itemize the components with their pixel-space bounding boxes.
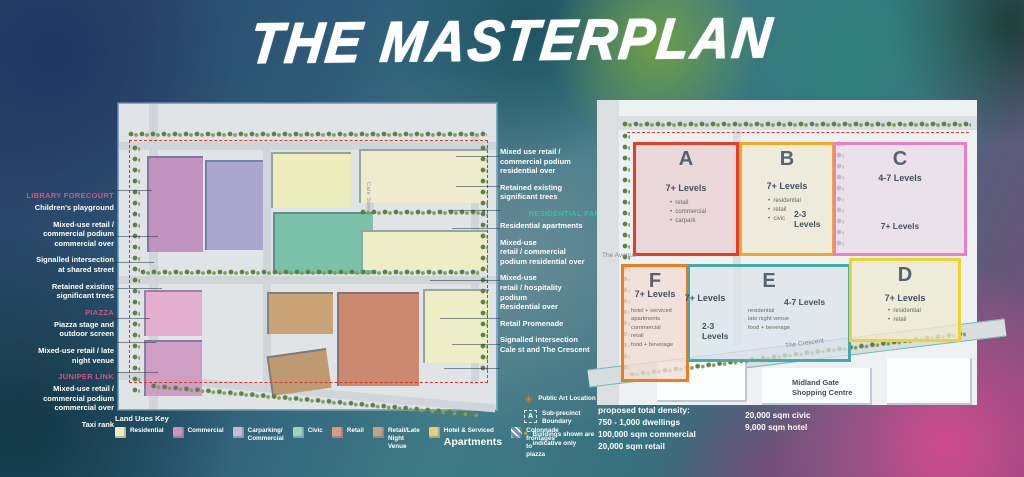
precinct-f: F7+ Levelshotel + serviced apartments co… — [621, 264, 689, 382]
precinct-uses: residential late night venue food + beve… — [748, 307, 790, 332]
leader-line — [112, 262, 154, 263]
legend-title: Land Uses Key — [115, 414, 510, 423]
annotation-item: Mixed-use retail / commercial podium res… — [500, 238, 606, 267]
legend-label: Retail — [347, 427, 364, 435]
block-residential-ne — [359, 149, 487, 203]
asterisk-icon: * — [524, 431, 528, 439]
annotation-item: Piazza stage and outdoor screen — [14, 320, 114, 339]
precinct-levels: 7+ Levels — [742, 181, 832, 191]
annotation-heading: PIAZZA — [14, 308, 114, 317]
precinct-a: A7+ Levels• retail• commercial• carpark — [633, 142, 739, 256]
annotation-item: Mixed-use retail / commercial podium com… — [14, 384, 114, 413]
tree-row — [139, 268, 479, 277]
leader-line — [112, 342, 156, 343]
annotation-item: Signalled intersection at shared street — [14, 255, 114, 274]
leader-line — [452, 228, 500, 229]
annotation-heading: LIBRARY FORECOURT — [14, 191, 114, 200]
public-art-icon: ✳ — [524, 395, 533, 405]
map-notes: ✳ Public Art Location A Sub-precinct Bou… — [524, 395, 604, 453]
leader-line — [456, 186, 500, 187]
precinct-b: B7+ Levels• residential• retail• civic2-… — [739, 142, 835, 256]
legend-item: Retail — [332, 427, 364, 438]
tree-row — [621, 120, 971, 129]
indicative-label: Buildings shown are indicative only — [533, 431, 595, 447]
block-commercial-sw — [144, 290, 202, 336]
tree-row — [127, 130, 487, 139]
precinct-map: A7+ Levels• retail• commercial• carparkB… — [597, 100, 977, 405]
block-residential-e — [361, 230, 487, 270]
public-art-label: Public Art Location — [538, 395, 596, 403]
legend-items: ResidentialCommercialCarparking/ Commerc… — [115, 427, 510, 458]
cale-street-label: Cale Street — [365, 182, 371, 215]
precinct-letter: B — [742, 148, 832, 171]
tree-row — [479, 144, 488, 374]
legend-item: Hotel & ServicedApartments — [429, 427, 502, 449]
page-title: THE MASTERPLAN — [37, 3, 988, 80]
block-latenight — [267, 292, 333, 334]
legend-swatch — [233, 427, 244, 438]
precinct-levels: 7+ Levels — [626, 293, 784, 303]
annotation-item: Residential apartments — [500, 221, 606, 231]
precinct-levels-sub: 2-3 Levels — [702, 321, 728, 341]
legend-label: Hotel & ServicedApartments — [444, 427, 502, 449]
leader-line — [440, 318, 500, 319]
sub-precinct-boundary-icon: A — [524, 410, 537, 423]
precinct-levels-sub: 2-3 Levels — [794, 209, 820, 229]
leader-line — [448, 210, 500, 211]
annotation-item: Mixed-use retail / hospitality podium Re… — [500, 273, 606, 311]
precinct-levels-sub: 7+ Levels — [836, 221, 964, 231]
annotation-item: Retained existing significant trees — [500, 183, 606, 202]
annotation-item: Mixed use retail / commercial podium res… — [500, 147, 606, 176]
legend-label: Carparking/ Commercial — [248, 427, 284, 443]
legend-label: Civic — [308, 427, 323, 435]
middle-annotation-column: Mixed use retail / commercial podium res… — [500, 147, 606, 362]
building — [887, 358, 972, 405]
precinct-letter: C — [836, 148, 964, 171]
density-summary-right: 20,000 sqm civic9,000 sqm hotel — [745, 409, 811, 433]
annotation-item: Children's playground — [14, 203, 114, 213]
density-line: 750 - 1,000 dwellings — [598, 416, 696, 428]
street — [263, 142, 271, 392]
density-line: 20,000 sqm retail — [598, 440, 696, 452]
leader-line — [112, 372, 158, 373]
precinct-uses: • retail• commercial• carpark — [670, 199, 706, 226]
precinct-d: D7+ Levels• residential• retail — [849, 258, 961, 342]
annotation-item: Mixed-use retail / late night venue — [14, 346, 114, 365]
leader-line — [112, 288, 162, 289]
legend-swatch — [373, 427, 384, 438]
leader-line — [112, 236, 158, 237]
block-latenight-2 — [267, 348, 332, 396]
legend-swatch — [511, 427, 522, 438]
legend-swatch — [115, 427, 126, 438]
precinct-levels-secondary: 4-7 Levels — [784, 297, 825, 307]
annotation-heading: JUNIPER LINK — [14, 372, 114, 381]
block-residential-n — [271, 152, 351, 208]
precinct-letter: E — [690, 270, 848, 293]
precinct-uses: • residential• retail — [888, 307, 921, 325]
sub-precinct-label: Sub-precinct Boundary — [542, 410, 581, 426]
annotation-item: Taxi rank — [14, 420, 114, 430]
sub-precinct-note: A Sub-precinct Boundary — [524, 410, 604, 426]
public-art-note: ✳ Public Art Location — [524, 395, 604, 405]
precinct-levels: 7+ Levels — [852, 293, 958, 303]
block-retail — [337, 292, 419, 386]
density-line: proposed total density: — [598, 404, 696, 416]
block-commercial-nw — [147, 156, 203, 252]
leader-line — [112, 190, 152, 191]
legend-label: Residential — [130, 427, 164, 435]
masterplan-slide: THE MASTERPLAN LIBRARY FORECOURTChildren… — [0, 0, 1024, 477]
precinct-letter: A — [636, 148, 736, 171]
land-uses-key: Land Uses Key ResidentialCommercialCarpa… — [115, 414, 510, 458]
precinct-c: C4-7 Levels7+ Levels — [833, 142, 967, 256]
leader-line — [444, 368, 500, 369]
the-avenue-label: The Avenue — [602, 252, 637, 259]
leader-line — [112, 318, 150, 319]
leader-line — [452, 344, 500, 345]
precinct-uses: hotel + serviced apartments commercial r… — [631, 307, 673, 349]
leader-line — [430, 280, 500, 281]
density-line: 9,000 sqm hotel — [745, 421, 811, 433]
legend-item: Retail/Late Night Venue — [373, 427, 420, 451]
legend-item: Civic — [293, 427, 323, 438]
legend-swatch — [293, 427, 304, 438]
legend-swatch — [332, 427, 343, 438]
annotation-item: Mixed-use retail / commercial podium com… — [14, 220, 114, 249]
indicative-note: * Buildings shown are indicative only — [524, 431, 604, 447]
precinct-e: E7+ Levelsresidential late night venue f… — [687, 264, 851, 362]
legend-item: Residential — [115, 427, 164, 438]
legend-item: Carparking/ Commercial — [233, 427, 284, 443]
annotation-item: Signalled intersection Cale st and The C… — [500, 335, 606, 354]
block-carparking — [205, 160, 263, 250]
block-civic — [273, 212, 373, 274]
legend-swatch — [429, 427, 440, 438]
annotation-item: Retained existing significant trees — [14, 282, 114, 301]
precinct-levels: 7+ Levels — [636, 183, 736, 193]
shopping-centre-label: Midland Gate Shopping Centre — [792, 378, 852, 398]
annotation-heading: RESIDENTIAL PARK — [500, 209, 606, 218]
density-summary: proposed total density:750 - 1,000 dwell… — [598, 404, 696, 452]
density-line: 100,000 sqm commercial — [598, 428, 696, 440]
landuse-masterplan-map: Cale Street — [118, 103, 497, 410]
leader-line — [456, 156, 500, 157]
density-line: 20,000 sqm civic — [745, 409, 811, 421]
legend-label: Retail/Late Night Venue — [388, 427, 420, 451]
sub-precinct-letter: A — [528, 413, 533, 420]
legend-swatch — [173, 427, 184, 438]
legend-label-large: Apartments — [444, 436, 502, 449]
left-annotation-column: LIBRARY FORECOURTChildren's playgroundMi… — [14, 184, 114, 437]
precinct-letter: D — [852, 264, 958, 287]
annotation-item: Retail Promenade — [500, 319, 606, 329]
legend-label: Commercial — [188, 427, 224, 435]
legend-item: Commercial — [173, 427, 224, 438]
precinct-levels: 4-7 Levels — [836, 173, 964, 183]
site-boundary-red-dashed — [627, 132, 969, 133]
